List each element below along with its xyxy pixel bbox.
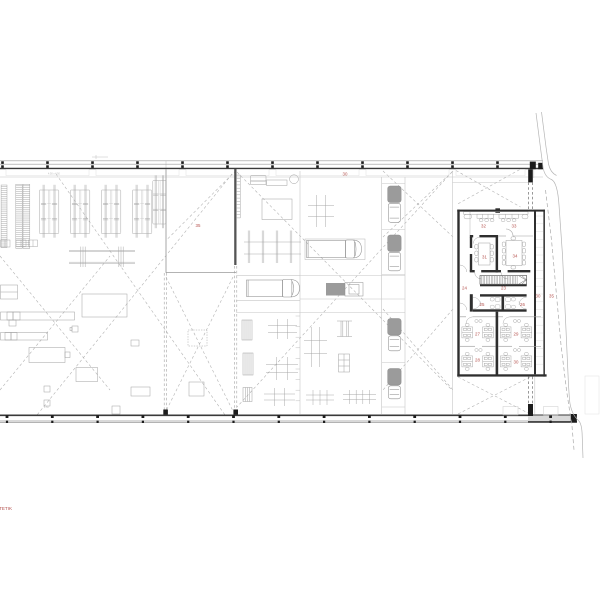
svg-text:30: 30 xyxy=(536,294,541,299)
svg-text:34: 34 xyxy=(513,254,518,259)
svg-text:29: 29 xyxy=(514,332,519,337)
svg-text:30: 30 xyxy=(343,171,348,176)
svg-text:35: 35 xyxy=(549,294,554,299)
svg-text:31: 31 xyxy=(482,255,487,260)
svg-text:4.50 x 4.50: 4.50 x 4.50 xyxy=(48,173,60,176)
svg-text:35: 35 xyxy=(196,223,201,228)
svg-text:26: 26 xyxy=(520,302,525,307)
svg-text:23: 23 xyxy=(501,286,506,291)
svg-text:30: 30 xyxy=(514,360,519,365)
svg-text:24: 24 xyxy=(462,286,467,291)
svg-text:28: 28 xyxy=(475,358,480,363)
svg-text:ETETIK: ETETIK xyxy=(0,506,13,511)
svg-text:25: 25 xyxy=(480,302,485,307)
svg-text:32: 32 xyxy=(481,224,486,229)
svg-text:4.50: 4.50 xyxy=(44,406,49,409)
svg-text:33: 33 xyxy=(512,224,517,229)
svg-text:27: 27 xyxy=(475,332,480,337)
